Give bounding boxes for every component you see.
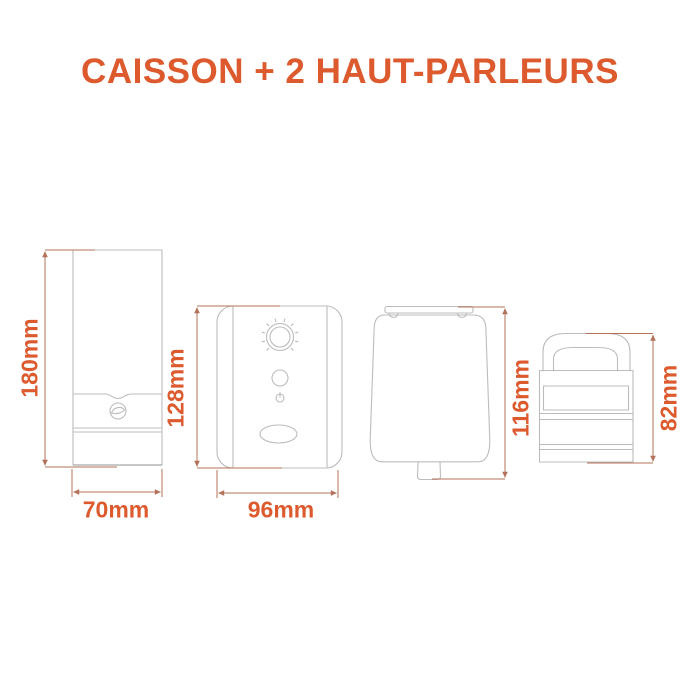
power-symbol-icon [276, 393, 284, 403]
dimension-label-subwoofer-back-width: 96mm [248, 499, 314, 522]
subwoofer-back-drawing [217, 306, 342, 468]
mounting-stub [418, 462, 441, 480]
subwoofer-side-dimensions [45, 250, 162, 497]
speaker-handle-drawing [540, 334, 634, 463]
subwoofer-back-dimensions [197, 306, 338, 498]
dimension-label-subwoofer-back-height: 128mm [165, 348, 188, 427]
line-art-diagram [0, 0, 700, 700]
bass-port [260, 425, 297, 443]
recessed-panel [544, 386, 629, 410]
subwoofer-side-drawing [73, 250, 162, 465]
dimension-label-speaker-handle-height: 82mm [658, 365, 681, 431]
dimension-label-speaker-height: 116mm [510, 359, 533, 437]
volume-knob-icon [262, 319, 298, 350]
speaker-side-drawing [370, 307, 490, 480]
brand-logo-icon [110, 403, 126, 419]
dimension-label-subwoofer-width: 70mm [83, 499, 149, 522]
round-button-icon [272, 370, 288, 386]
speaker-side-dimensions [432, 307, 505, 479]
dimension-label-subwoofer-height: 180mm [19, 318, 42, 397]
carry-handle [543, 334, 630, 372]
product-dimension-sheet: CAISSON + 2 HAUT-PARLEURS [0, 0, 700, 700]
speaker-handle-dimensions [586, 334, 653, 464]
